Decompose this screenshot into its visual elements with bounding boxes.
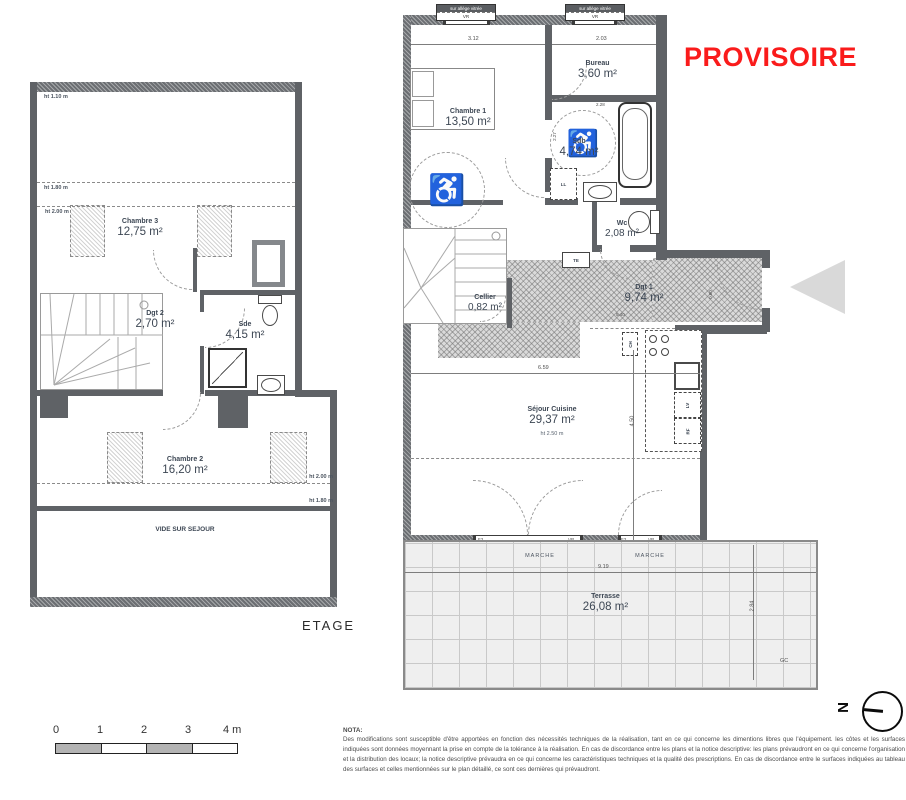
room-label-chambre2: Chambre 2 16,20 m² [135,456,235,477]
door-arc [528,480,583,535]
dim-line [411,44,545,45]
etage-caption: ETAGE [302,618,355,633]
fridge: RF [674,418,701,444]
etage-plan: ht 1.10 m ht 1.80 m ht 2.00 m [30,78,340,610]
scale-tick: 3 [185,724,191,736]
dim-label: 9.19 [598,564,609,570]
scale-tick: 4 m [223,724,241,736]
entry-arrow [790,260,845,314]
dim-label: 2.84 [749,601,755,612]
electrical-panel: TE [562,252,590,268]
door-arc [505,158,545,198]
height-mark: ht 1.80 m [285,498,333,504]
room-label-sde: Sde 4,15 m² [210,321,280,342]
dim-line [552,44,656,45]
height-line [37,483,330,484]
dim-label-wrap: 2.84 [747,603,759,613]
window-head-label: sur allège vitrée VR [565,4,625,21]
height-line [37,182,295,183]
shower [208,348,247,388]
window-head-label: sur allège vitrée VR [436,4,496,21]
north-letter: N [835,702,852,713]
height-mark: ht 2.00 m [45,209,69,215]
door-arc [618,490,662,535]
room-label-vide: VIDE SUR SEJOUR [110,526,260,533]
nota-block: NOTA: Des modifications sont susceptible… [343,727,905,775]
roof-window [197,205,232,257]
wall [545,25,552,120]
dim-line [405,572,816,573]
room-label-chambre1: Chambre 1 13,50 m² [428,108,508,129]
dim-label: 3.12 [468,36,479,42]
scale-tick: 2 [141,724,147,736]
toilet-tank [258,295,282,304]
pillow [412,71,434,97]
dim-label: 2.27 [552,132,557,141]
floorplan-sheet: ht 1.10 m ht 1.80 m ht 2.00 m [0,0,906,800]
nota-body: Des modifications sont susceptible d'êtr… [343,735,905,775]
sink [674,362,700,390]
dim-label: 6.59 [538,365,549,371]
dim-label-wrap: 2.27 [550,134,562,144]
height-mark: ht 1.80 m [44,185,68,191]
washbasin-bowl [588,185,612,199]
cooktop [646,332,674,362]
gc-label: GC [780,658,788,664]
room-label-dgt2: Dgt 2 2,70 m² [120,310,190,331]
wall [295,82,302,397]
wall [620,198,667,205]
washing-machine: LL [550,168,577,200]
scale-bar-segments [55,743,238,754]
room-label-wc: Wc 2,08 m² [596,220,648,240]
dim-line [633,350,634,543]
door-arc [163,392,201,430]
door-arc [153,250,193,290]
wall [30,82,37,607]
door-arc [473,480,528,535]
terrasse-deck [403,540,818,690]
height-mark: ht 2.00 m [285,474,333,480]
provisoire-stamp: PROVISOIRE [684,42,857,73]
room-label-chambre3: Chambre 3 12,75 m² [90,218,190,239]
dim-label: 5.40 [616,312,625,317]
height-mark: ht 1.10 m [44,94,68,100]
room-label-dgt1: Dgt 1 9,74 m² [613,284,675,305]
wall [630,245,667,252]
stairs [40,293,163,390]
scale-tick: 0 [53,724,59,736]
ceiling-height-line [411,458,700,459]
scale-bar: 0 1 2 3 4 m [55,724,255,760]
scale-tick: 1 [97,724,103,736]
wall [37,506,330,511]
wall [30,82,302,92]
dim-label: 2.28 [596,102,605,107]
washbasin-bowl [261,378,281,392]
toilet-tank [650,210,660,234]
duct [252,240,285,287]
dim-label: 0.60 [708,290,713,299]
dim-label-wrap: 0.60 [706,292,718,302]
wall [200,346,204,394]
nota-title: NOTA: [343,727,905,734]
wheelchair-icon: ♿ [428,173,465,208]
wall-post [218,394,248,428]
wall [490,15,572,25]
dim-label: 4.50 [629,416,635,427]
wall [200,290,204,312]
dim-line [411,373,700,374]
main-plan: F3 VR F3 VR sur allège vitrée VR sur all… [400,10,860,690]
opening-line [590,328,675,329]
bathtub-inner [622,108,648,180]
wheelchair-turning-circle: ♿ [409,152,485,228]
wall-post [40,392,68,418]
dim-label-wrap: 4.50 [627,418,639,428]
room-label-terrasse: Terrasse 26,08 m² [558,593,653,614]
marche-label: MARCHE [610,553,690,559]
boiler: CH [622,332,638,356]
wall [30,597,337,607]
dishwasher: LV [674,392,701,418]
room-label-sejour: Séjour Cuisine 29,37 m² ht 2.50 m [508,406,596,438]
dim-label: 2.03 [596,36,607,42]
marche-label: MARCHE [495,553,585,559]
wall [660,250,770,258]
wall [762,258,770,268]
